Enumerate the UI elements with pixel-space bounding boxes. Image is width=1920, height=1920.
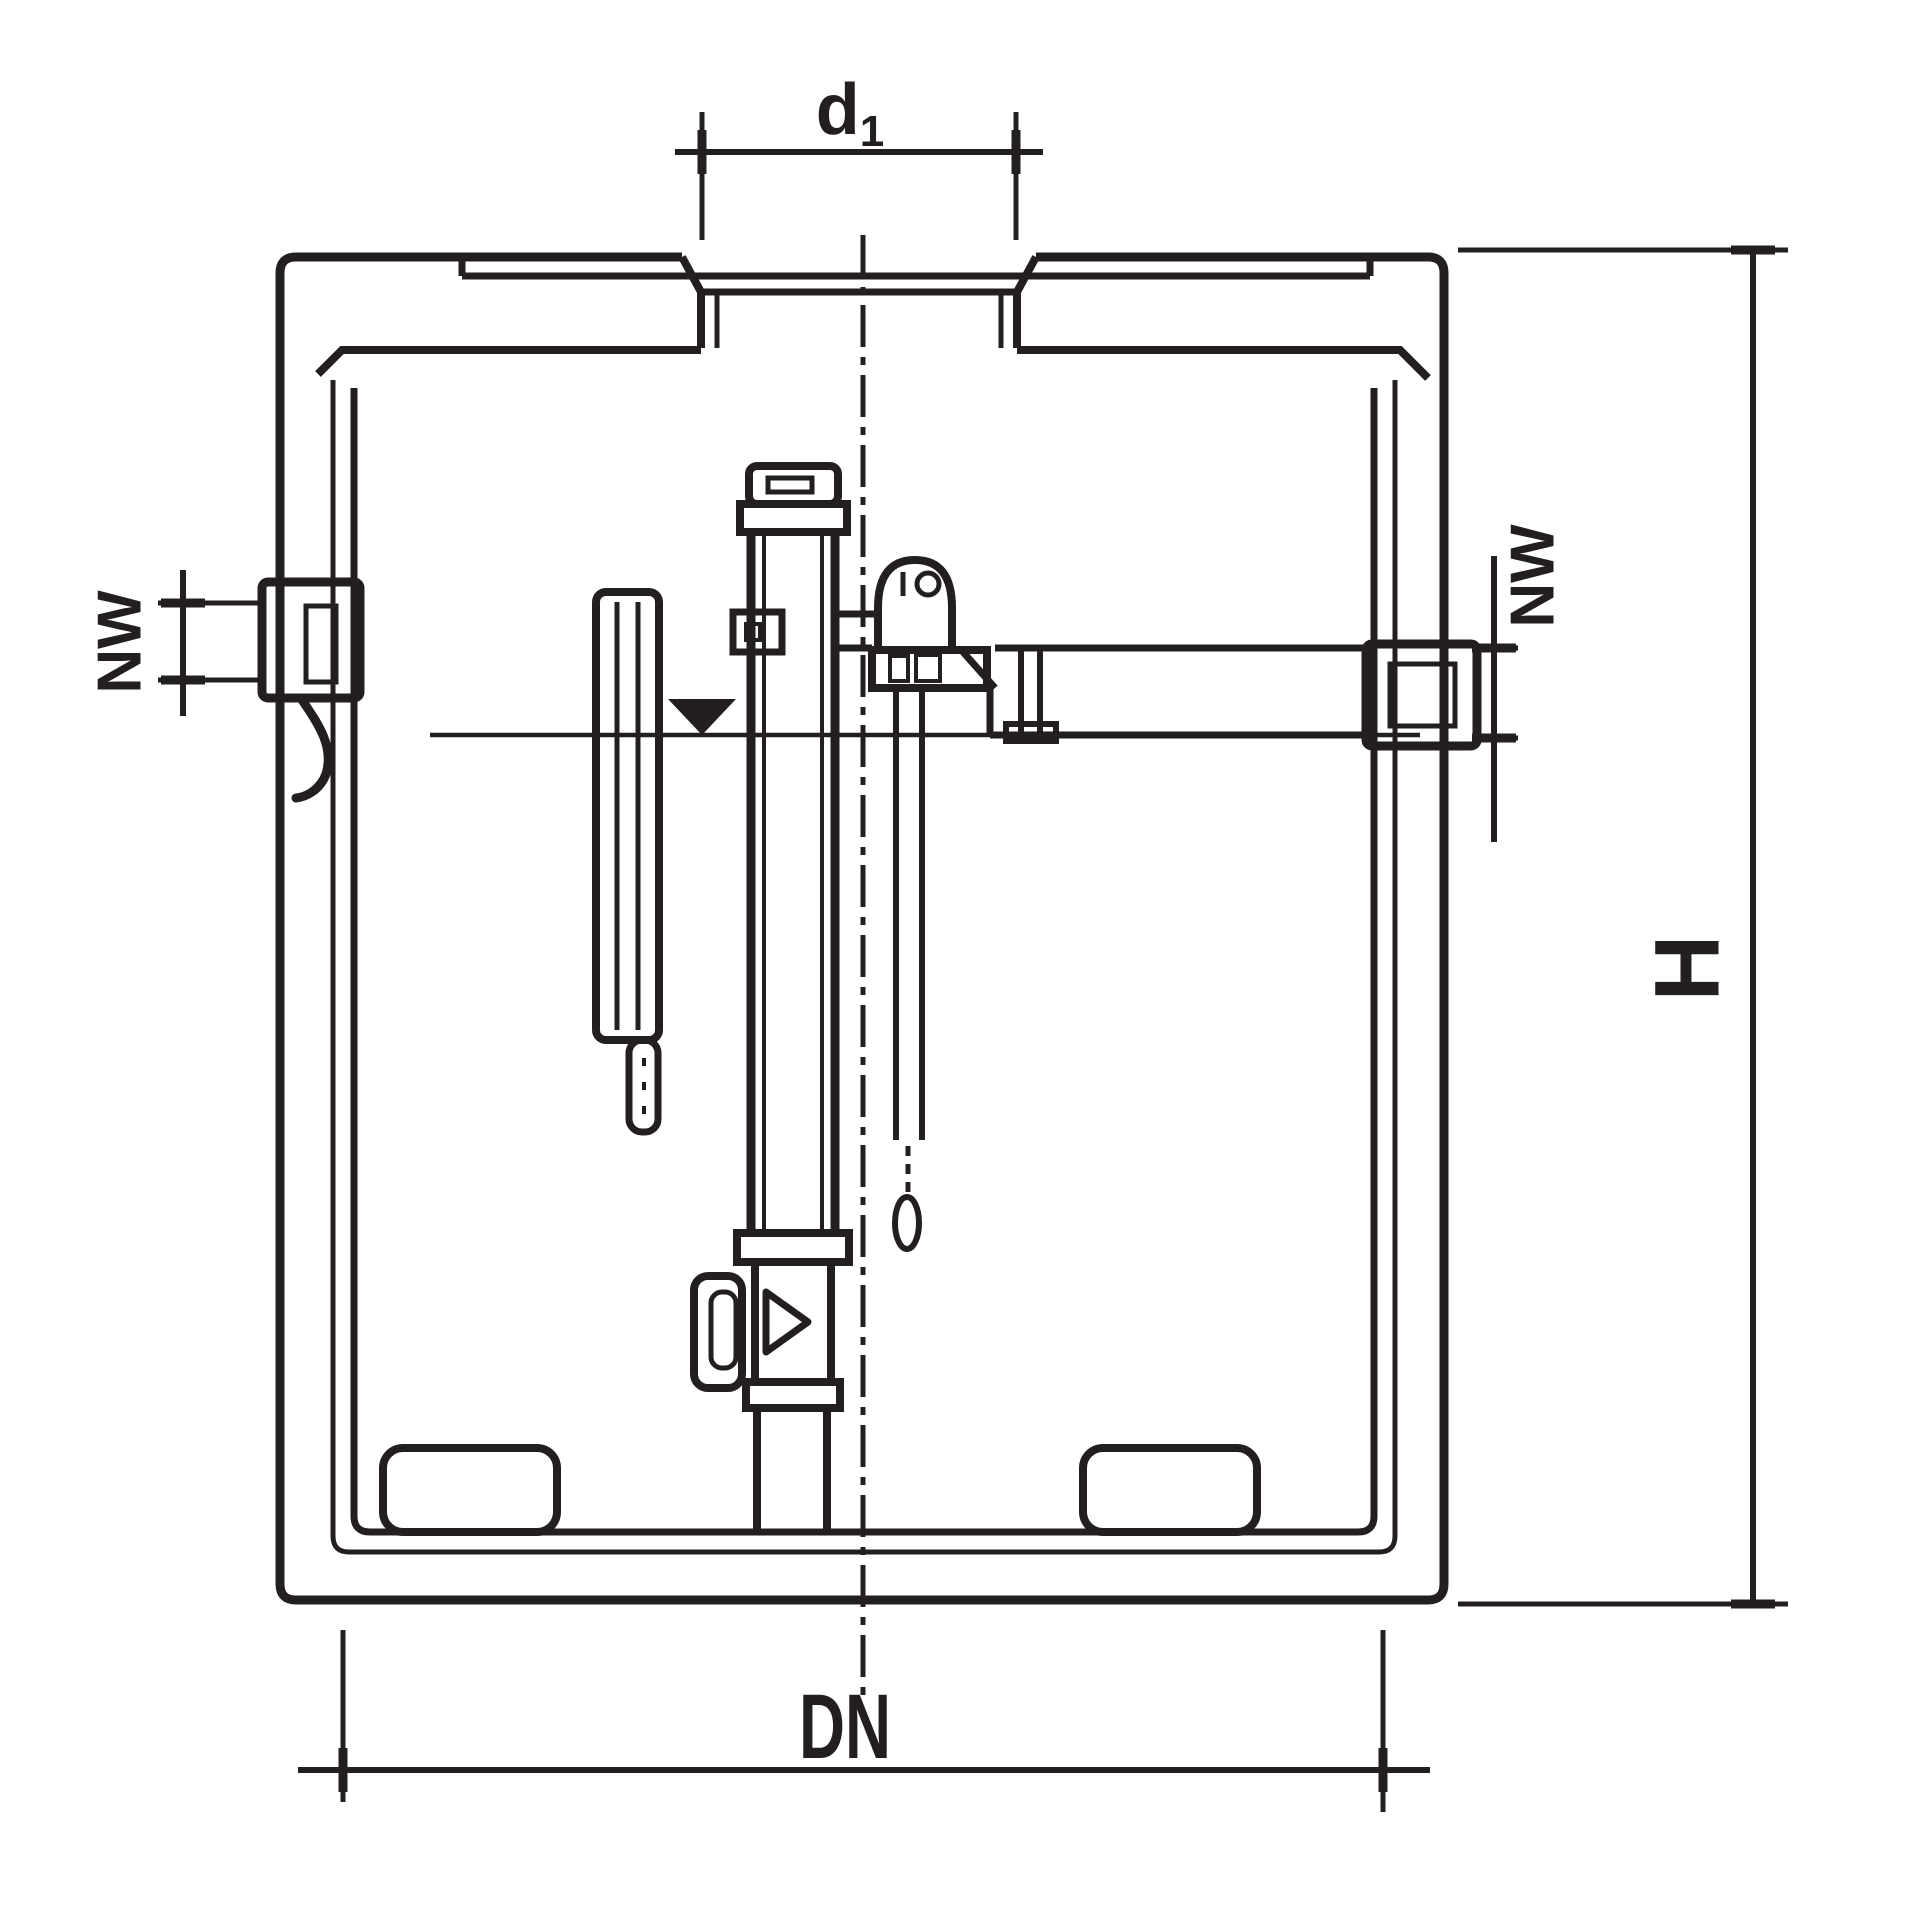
pump-assembly (694, 1233, 849, 1532)
float-guide-inner-lines (617, 602, 638, 1030)
valve-body-slot-2 (916, 655, 940, 681)
pump-shaft-section-drawing: d1 NW NW H DN (0, 0, 1920, 1920)
technical-drawing-page: d1 NW NW H DN (0, 0, 1920, 1920)
inlet-neck (682, 257, 1036, 348)
pump-lower-flange (746, 1382, 840, 1408)
nw-right-extension-lines (1482, 648, 1518, 738)
pipe-cap-collar (740, 504, 847, 532)
pump-clamp-slot (711, 1292, 736, 1368)
guide-rods (896, 688, 922, 1140)
ballast-block-left (383, 1448, 557, 1532)
valve-dome (878, 560, 952, 650)
discharge-pipe (740, 466, 847, 1233)
pipe-cap-slot (768, 478, 812, 492)
pump-base-pipe (757, 1408, 827, 1532)
valve-body-slot-1 (890, 656, 908, 681)
neck-left-edge (682, 257, 701, 348)
outlet-socket-right (1366, 644, 1477, 746)
dimension-h (1458, 250, 1788, 1604)
d1-label: d1 (816, 70, 884, 156)
nw-left-label: NW (85, 590, 154, 694)
valve-dome-detail-circle (917, 573, 939, 595)
cable-bracket (733, 612, 782, 652)
ballast-block-right (1083, 1448, 1257, 1532)
h-label: H (1636, 935, 1738, 1001)
neck-right-edge (1017, 257, 1036, 348)
nw-right-label: NW (1498, 524, 1567, 628)
nw-left-extension-lines (158, 603, 260, 680)
dimension-nw-left (158, 570, 260, 716)
pipe-top-cap (749, 466, 838, 504)
pump-flow-triangle (766, 1292, 808, 1352)
pump-upper-flange (737, 1233, 849, 1262)
water-level-symbol-icon (668, 699, 736, 735)
outlet-socket-body (1366, 644, 1477, 746)
valve-connector (835, 614, 878, 648)
neck-inner-walls (717, 292, 1001, 348)
check-valve-assembly (835, 560, 1366, 1249)
chain-hook-loop (895, 1197, 919, 1249)
tank-inner-shell (318, 350, 1428, 1552)
inflow-stream-curve (296, 700, 328, 798)
inner-ceiling (318, 350, 1428, 378)
dn-label: DN (799, 1676, 891, 1778)
h-extension-lines (1458, 250, 1788, 1604)
pipe-inner-walls (764, 532, 822, 1233)
float-guide-tube (596, 592, 659, 1040)
